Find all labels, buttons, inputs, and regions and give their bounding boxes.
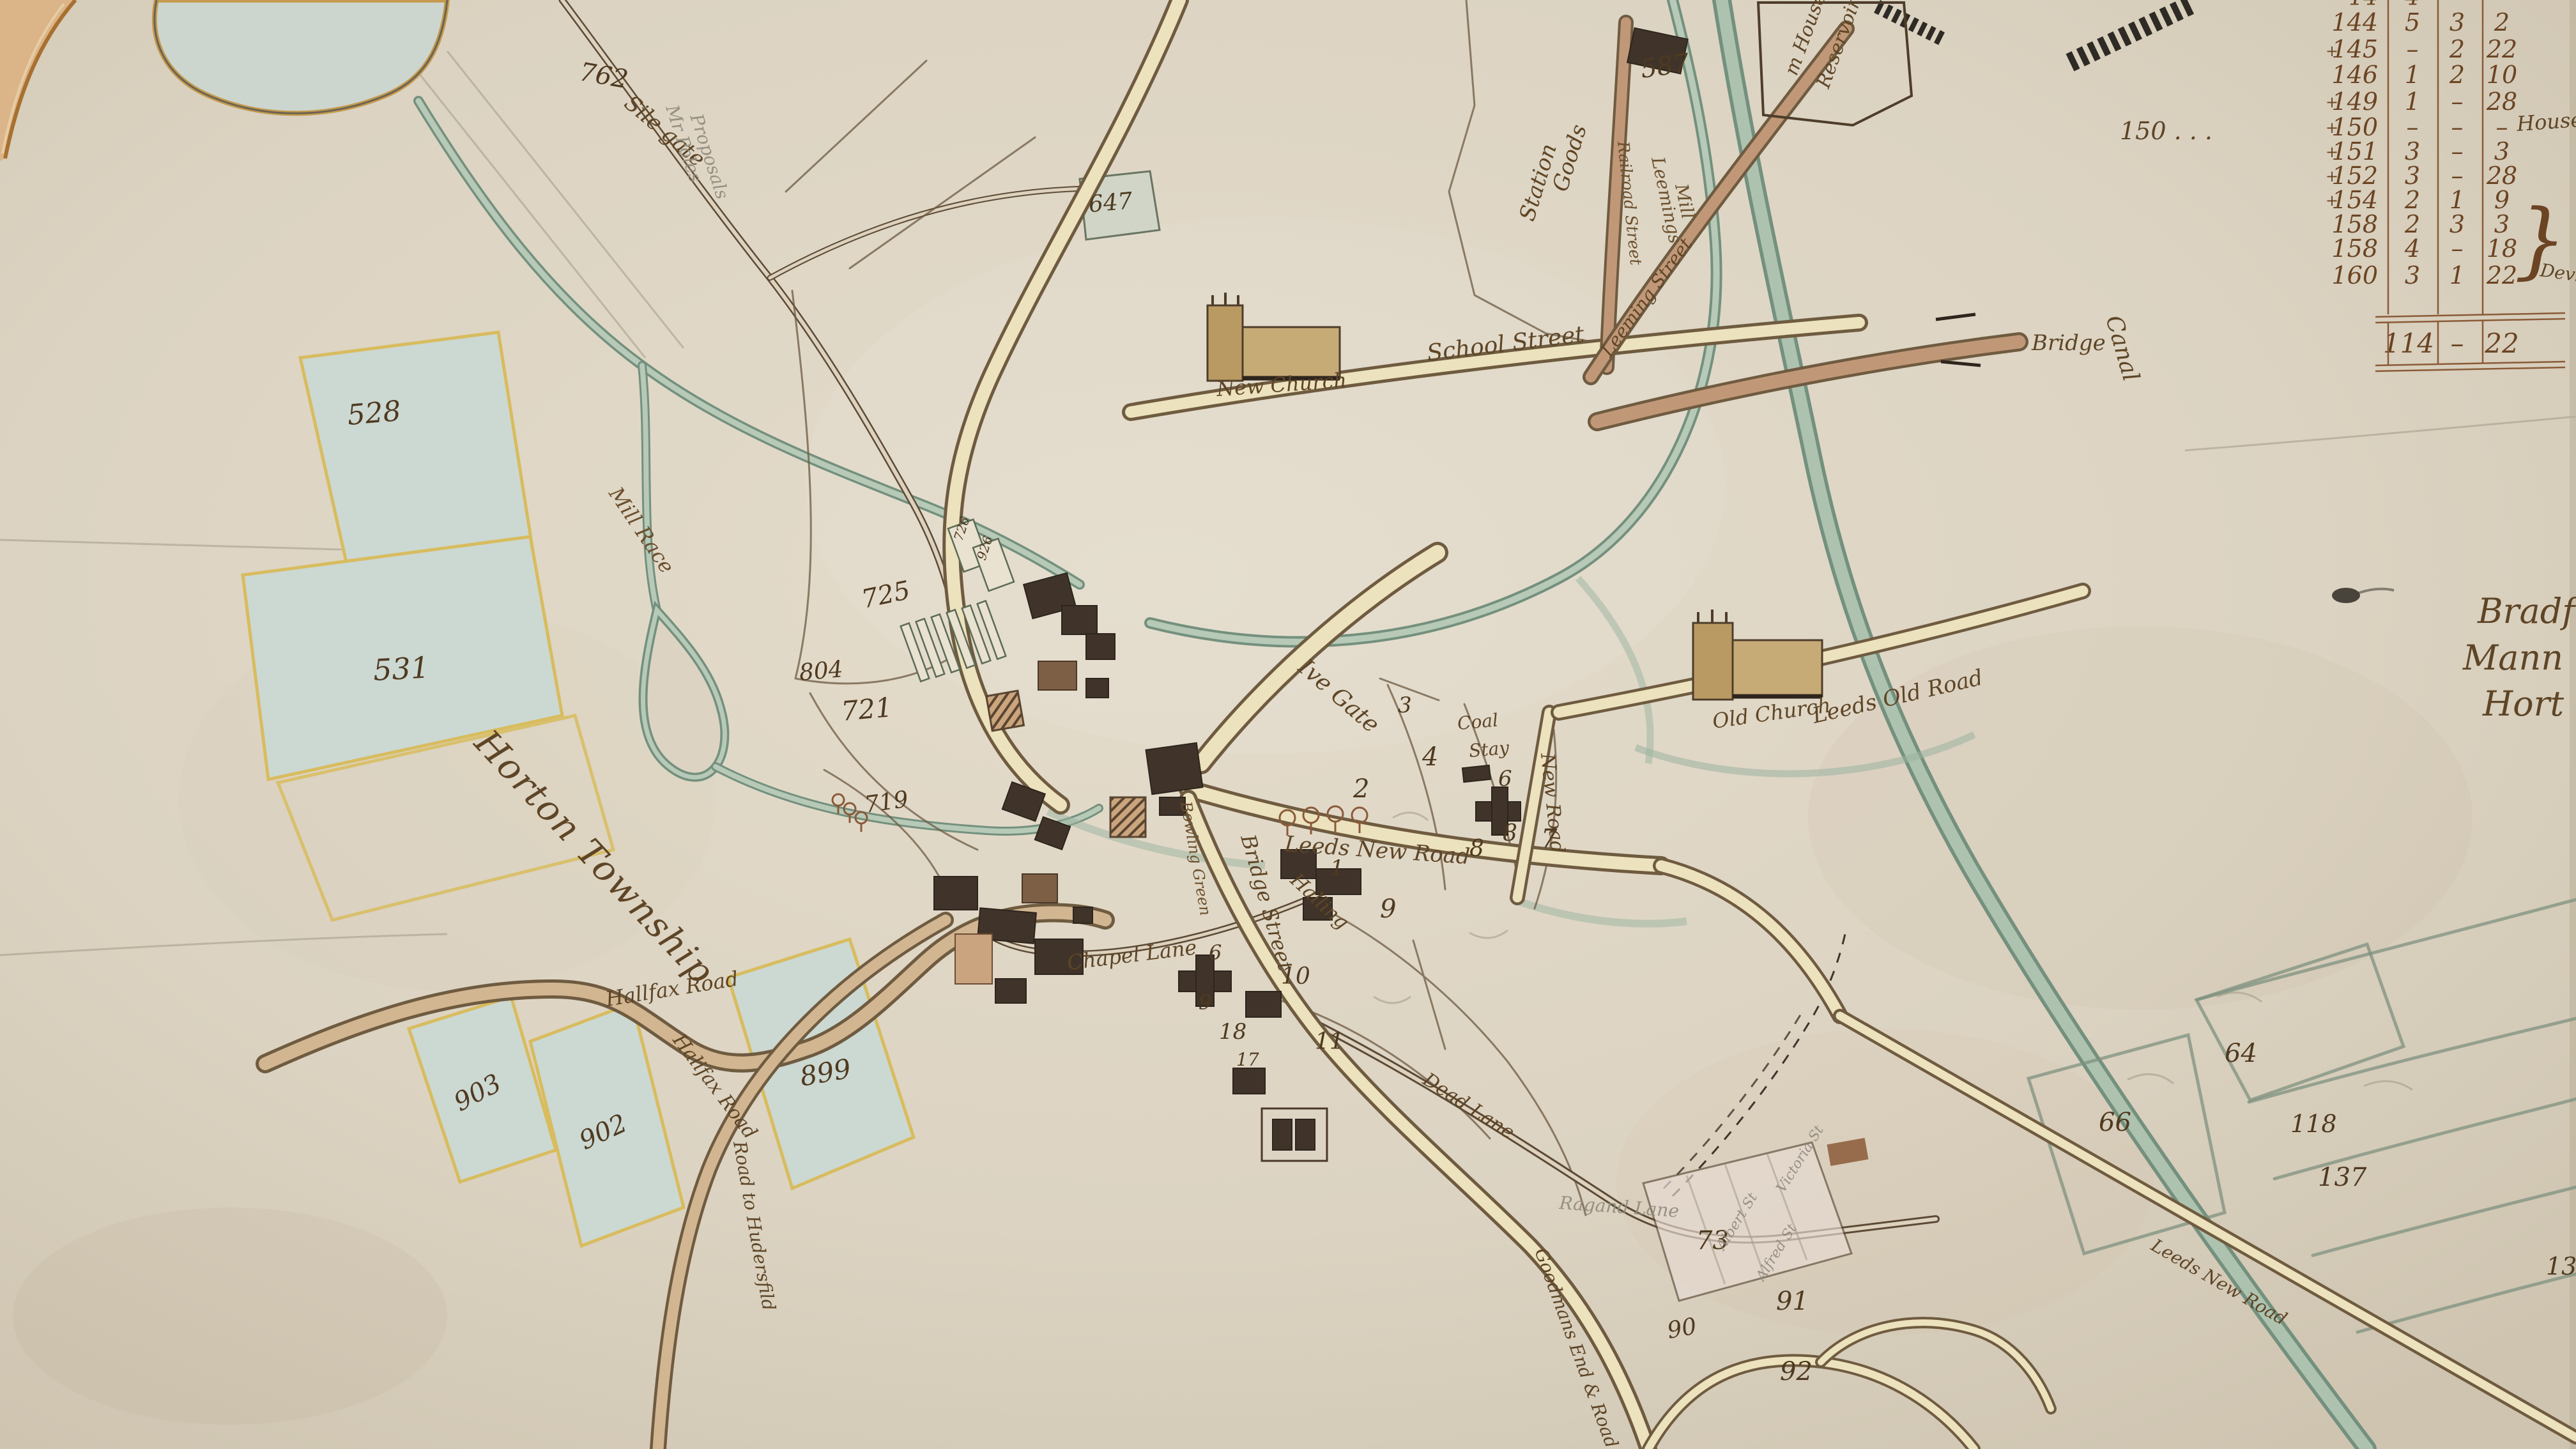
plot-number: 64 bbox=[2225, 1039, 2257, 1068]
table-cell: 3 bbox=[2449, 8, 2465, 36]
table-cell: 22 bbox=[2486, 261, 2517, 289]
hatched-building bbox=[1110, 797, 1146, 837]
plot-number: 528 bbox=[346, 395, 402, 432]
plot-number: 9 bbox=[1380, 894, 1396, 924]
table-note-house: House bbox=[2515, 107, 2576, 136]
table-cell: 18 bbox=[2487, 234, 2517, 263]
table-cell: 144 bbox=[2331, 8, 2378, 36]
plot-number: 647 bbox=[1087, 188, 1133, 218]
junction-building bbox=[1146, 743, 1203, 794]
plot-number: 8 bbox=[1469, 836, 1484, 862]
annotation-150: 150 . . . bbox=[2120, 117, 2212, 145]
plot-number: 90 bbox=[1665, 1314, 1698, 1344]
table-total: – bbox=[2451, 328, 2464, 359]
plot-number: 7 bbox=[1541, 824, 1558, 854]
plot-number: 804 bbox=[798, 656, 844, 686]
building-plot17 bbox=[1233, 1068, 1265, 1094]
plot-number: 92 bbox=[1780, 1357, 1813, 1386]
place-label-coal: Coal bbox=[1457, 710, 1499, 734]
plot-number: 531 bbox=[372, 650, 431, 687]
plot-number: 11 bbox=[1315, 1029, 1344, 1055]
place-label-bridge: Bridge bbox=[2031, 330, 2106, 356]
plot-number: 4 bbox=[1422, 742, 1438, 772]
plot-number: 1 bbox=[1330, 855, 1344, 881]
table-cell: 1 bbox=[2449, 261, 2465, 289]
table-cell: – bbox=[2451, 88, 2464, 116]
table-cell: 5 bbox=[2405, 8, 2420, 36]
table-total: 22 bbox=[2484, 328, 2518, 359]
plot-number: 10 bbox=[1281, 963, 1310, 990]
table-cell: 4 bbox=[2404, 234, 2420, 263]
table-cell: 10 bbox=[2487, 61, 2517, 89]
plot-number: 91 bbox=[1776, 1287, 1809, 1316]
plot-number: 8 bbox=[1503, 820, 1517, 847]
plot-number: 9 bbox=[1199, 990, 1211, 1015]
plot-number: 3 bbox=[1398, 693, 1412, 718]
manuscript-map-canvas: Sile gate 762 Mr Poles Proposals 528 531… bbox=[0, 0, 2576, 1449]
table-cell: 160 bbox=[2331, 261, 2378, 289]
plot-number: 6 bbox=[1209, 940, 1222, 965]
plot-number: 17 bbox=[1236, 1049, 1259, 1070]
table-cell: 2 bbox=[2449, 35, 2465, 63]
edge-text-line1: Bradf bbox=[2477, 591, 2576, 631]
plot-number: 118 bbox=[2290, 1110, 2337, 1138]
table-cell: 2 bbox=[2494, 8, 2510, 36]
table-cell: 158 bbox=[2331, 234, 2378, 263]
edge-text-line2: Mann bbox=[2462, 638, 2563, 678]
plot-number-partial: 13 bbox=[2546, 1252, 2576, 1280]
table-cell: – bbox=[2407, 35, 2419, 63]
plot-number: 6 bbox=[1498, 766, 1512, 792]
table-total: 114 bbox=[2383, 328, 2434, 359]
table-cell: 145 bbox=[2331, 35, 2378, 63]
plot-number: 2 bbox=[1353, 774, 1369, 804]
table-cell: – bbox=[2451, 234, 2464, 263]
table-cell: 1 bbox=[2405, 61, 2420, 89]
edge-text-line3: Hort bbox=[2482, 684, 2564, 724]
table-cell: 146 bbox=[2331, 61, 2378, 89]
table-cell: 2 bbox=[2449, 61, 2465, 89]
plot-number: 721 bbox=[840, 691, 894, 727]
ink-smudge bbox=[2332, 588, 2360, 603]
hatched-building bbox=[986, 691, 1024, 731]
table-cell: 22 bbox=[2486, 35, 2517, 63]
table-cell: 149 bbox=[2331, 88, 2378, 116]
table-cell: 3 bbox=[2405, 261, 2420, 289]
plot-number: 137 bbox=[2318, 1163, 2367, 1192]
table-cell: 1 bbox=[2405, 88, 2420, 116]
place-label-stay: Stay bbox=[1468, 737, 1511, 762]
table-cell: 28 bbox=[2486, 88, 2517, 116]
plot-number: 18 bbox=[1219, 1019, 1246, 1045]
plot-number: 66 bbox=[2099, 1108, 2131, 1137]
